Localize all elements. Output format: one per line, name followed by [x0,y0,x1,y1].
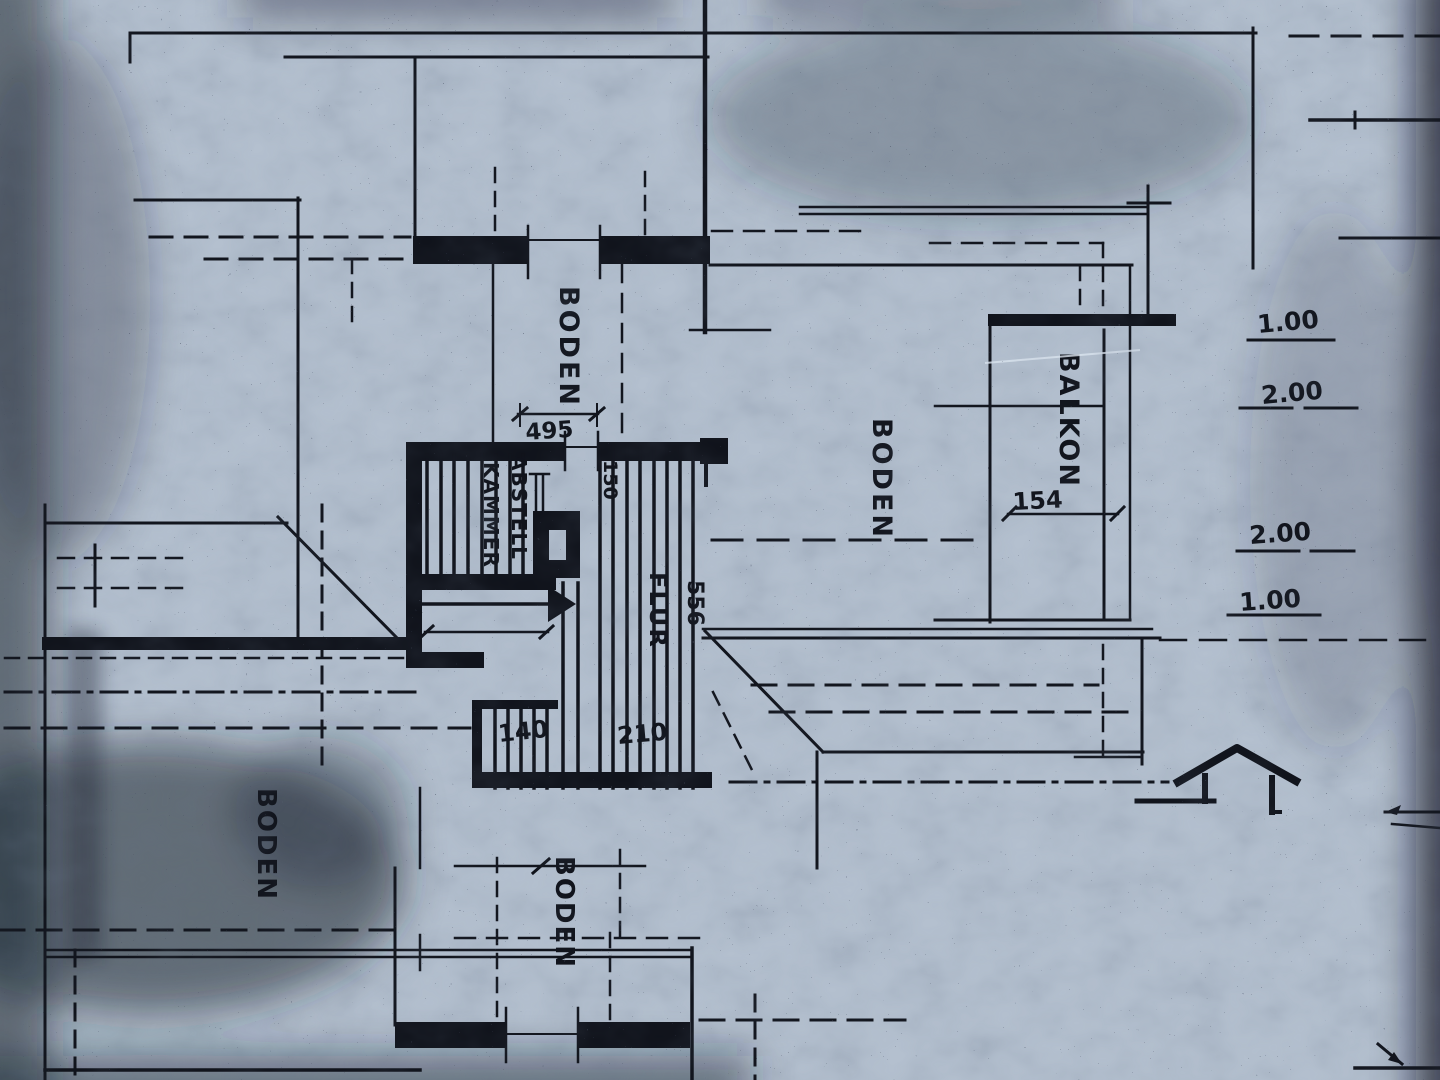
floor-plan-drawing: BODEN BALKON BODEN ABSTELL KAMMER FLUR B… [0,0,1440,1080]
grain-overlay-blotch [0,0,1440,1080]
floor-plan-scan: BODEN BALKON BODEN ABSTELL KAMMER FLUR B… [0,0,1440,1080]
